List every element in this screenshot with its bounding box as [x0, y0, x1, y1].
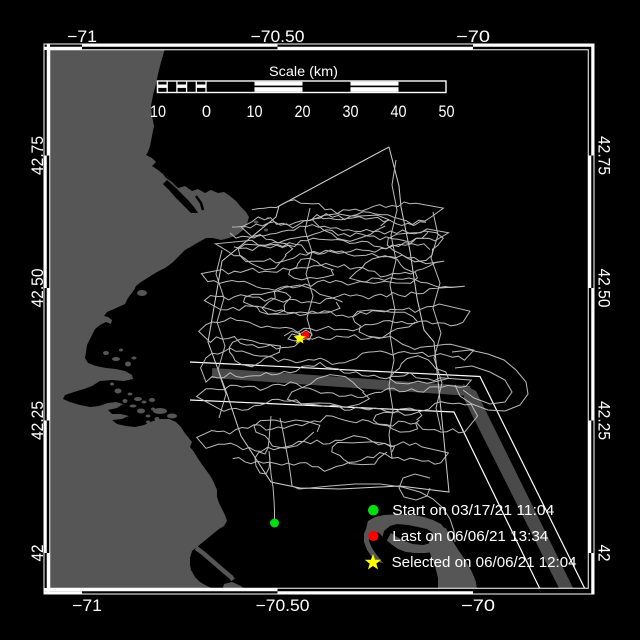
svg-text:−70: −70: [461, 597, 495, 615]
svg-text:−71: −71: [72, 597, 102, 615]
svg-text:Last on 06/06/21 13:34: Last on 06/06/21 13:34: [392, 528, 548, 545]
svg-text:Selected on 06/06/21 12:04: Selected on 06/06/21 12:04: [392, 554, 577, 571]
svg-text:42.75: 42.75: [595, 136, 613, 175]
svg-text:42.50: 42.50: [595, 269, 613, 308]
svg-text:20: 20: [295, 103, 311, 121]
svg-text:−70.50: −70.50: [251, 28, 305, 46]
svg-text:42.25: 42.25: [29, 401, 47, 440]
svg-text:40: 40: [391, 103, 407, 121]
svg-text:30: 30: [343, 103, 359, 121]
svg-text:Scale (km): Scale (km): [269, 63, 338, 79]
svg-text:10: 10: [247, 103, 263, 121]
svg-text:−70.50: −70.50: [256, 597, 310, 615]
svg-text:42.75: 42.75: [29, 136, 47, 175]
svg-text:−70: −70: [456, 28, 490, 46]
svg-text:0: 0: [202, 103, 211, 121]
svg-text:42: 42: [595, 545, 613, 562]
svg-text:−71: −71: [67, 28, 97, 46]
svg-text:50: 50: [439, 103, 455, 121]
svg-text:42: 42: [29, 545, 47, 562]
svg-text:42.25: 42.25: [595, 401, 613, 440]
svg-text:42.50: 42.50: [29, 269, 47, 308]
svg-text:Start on 03/17/21 11:04: Start on 03/17/21 11:04: [392, 502, 554, 519]
svg-text:10: 10: [150, 103, 166, 121]
